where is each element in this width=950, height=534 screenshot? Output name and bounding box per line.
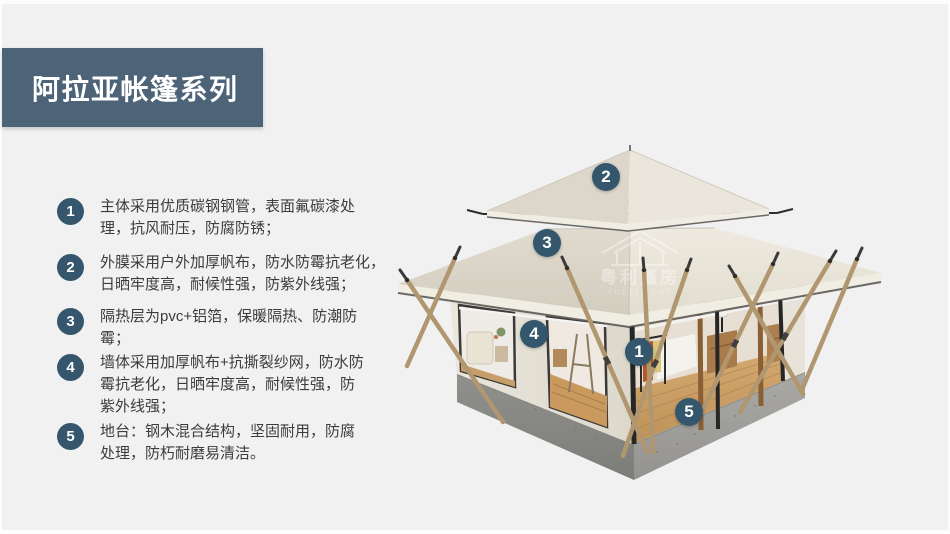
feature-text-3: 隔热层为pvc+铝箔，保暖隔热、防潮防 霉； — [100, 306, 357, 350]
feature-number-1: 1 — [57, 198, 84, 225]
feature-line: 日晒牢度高，耐候性强，防紫外线强； — [100, 274, 385, 296]
feature-item-5: 5 地台：钢木混合结构，坚固耐用，防腐 处理，防朽耐磨易清洁。 — [57, 421, 402, 465]
feature-line: 紫外线强； — [100, 396, 364, 418]
tent-illustration: 粤利篷房 YUELI TENT — [395, 134, 950, 534]
feature-item-1: 1 主体采用优质碳钢钢管，表面氟碳漆处 理，抗风耐压，防腐防锈； — [57, 196, 402, 240]
feature-line: 外膜采用户外加厚帆布，防水防霉抗老化， — [100, 252, 385, 274]
top-roof — [487, 145, 769, 231]
tent-callout-2: 2 — [592, 163, 620, 191]
feature-line: 地台：钢木混合结构，坚固耐用，防腐 — [100, 421, 355, 443]
feature-line: 处理，防朽耐磨易清洁。 — [100, 443, 355, 465]
watermark-brand: 粤利篷房 — [600, 267, 680, 287]
feature-number-3: 3 — [57, 308, 84, 335]
feature-line: 隔热层为pvc+铝箔，保暖隔热、防潮防 — [100, 306, 357, 328]
feature-text-4: 墙体采用加厚帆布+抗撕裂纱网，防水防 霉抗老化，日晒牢度高，耐候性强，防 紫外线… — [100, 352, 364, 418]
feature-line: 霉； — [100, 328, 357, 350]
feature-number-2: 2 — [57, 254, 84, 281]
tent-callout-4: 4 — [520, 320, 548, 348]
slide-canvas: 阿拉亚帐篷系列 1 主体采用优质碳钢钢管，表面氟碳漆处 理，抗风耐压，防腐防锈；… — [0, 0, 950, 534]
feature-line: 墙体采用加厚帆布+抗撕裂纱网，防水防 — [100, 352, 364, 374]
feature-text-2: 外膜采用户外加厚帆布，防水防霉抗老化， 日晒牢度高，耐候性强，防紫外线强； — [100, 252, 385, 296]
feature-text-1: 主体采用优质碳钢钢管，表面氟碳漆处 理，抗风耐压，防腐防锈； — [100, 196, 355, 240]
page-title: 阿拉亚帐篷系列 — [2, 68, 239, 108]
feature-list: 1 主体采用优质碳钢钢管，表面氟碳漆处 理，抗风耐压，防腐防锈； 2 外膜采用户… — [57, 196, 402, 465]
tent-figure: 粤利篷房 YUELI TENT — [395, 134, 950, 534]
watermark-brand-latin: YUELI TENT — [607, 288, 673, 297]
tent-callout-1: 1 — [625, 338, 653, 366]
feature-number-5: 5 — [57, 423, 84, 450]
feature-line: 理，抗风耐压，防腐防锈； — [100, 218, 355, 240]
feature-text-5: 地台：钢木混合结构，坚固耐用，防腐 处理，防朽耐磨易清洁。 — [100, 421, 355, 465]
feature-item-3: 3 隔热层为pvc+铝箔，保暖隔热、防潮防 霉； — [57, 306, 402, 350]
tent-callout-5: 5 — [675, 398, 703, 426]
title-banner: 阿拉亚帐篷系列 — [2, 48, 263, 127]
feature-item-2: 2 外膜采用户外加厚帆布，防水防霉抗老化， 日晒牢度高，耐候性强，防紫外线强； — [57, 252, 402, 296]
feature-item-4: 4 墙体采用加厚帆布+抗撕裂纱网，防水防 霉抗老化，日晒牢度高，耐候性强，防 紫… — [57, 352, 402, 418]
feature-number-4: 4 — [57, 354, 84, 381]
feature-line: 主体采用优质碳钢钢管，表面氟碳漆处 — [100, 196, 355, 218]
tent-callout-3: 3 — [533, 229, 561, 257]
feature-line: 霉抗老化，日晒牢度高，耐候性强，防 — [100, 374, 364, 396]
